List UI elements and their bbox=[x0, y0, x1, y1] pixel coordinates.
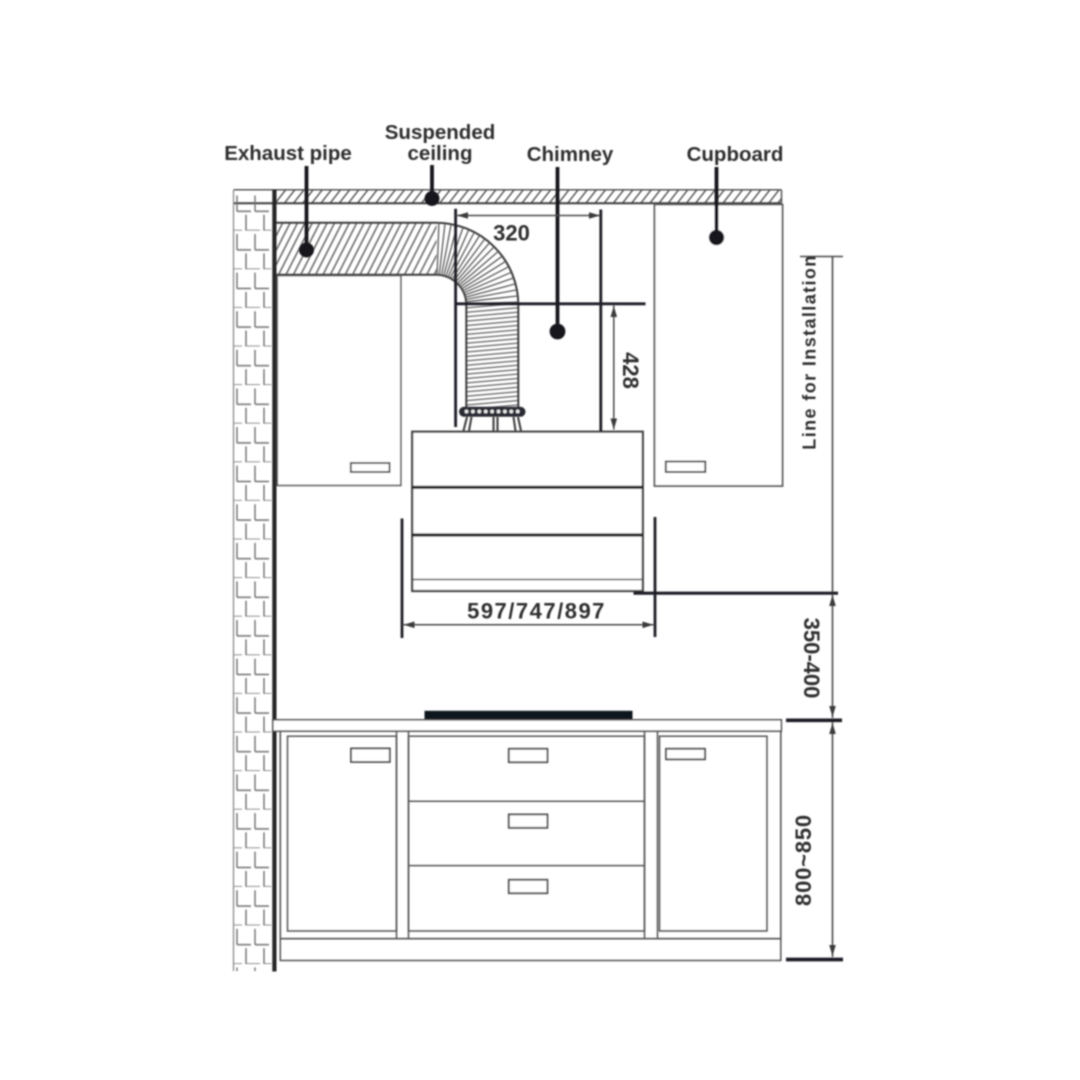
svg-text:350-400: 350-400 bbox=[799, 618, 824, 699]
svg-text:Chimney: Chimney bbox=[527, 143, 614, 166]
svg-text:Line for Installation: Line for Installation bbox=[800, 254, 820, 449]
svg-text:428: 428 bbox=[618, 352, 643, 389]
svg-text:Cupboard: Cupboard bbox=[687, 143, 784, 166]
svg-text:800~850: 800~850 bbox=[791, 814, 816, 906]
svg-text:Suspended: Suspended bbox=[385, 121, 496, 144]
svg-text:Exhaust pipe: Exhaust pipe bbox=[224, 142, 352, 165]
svg-text:ceiling: ceiling bbox=[408, 142, 473, 165]
svg-text:320: 320 bbox=[493, 221, 530, 246]
svg-text:597/747/897: 597/747/897 bbox=[467, 599, 606, 624]
